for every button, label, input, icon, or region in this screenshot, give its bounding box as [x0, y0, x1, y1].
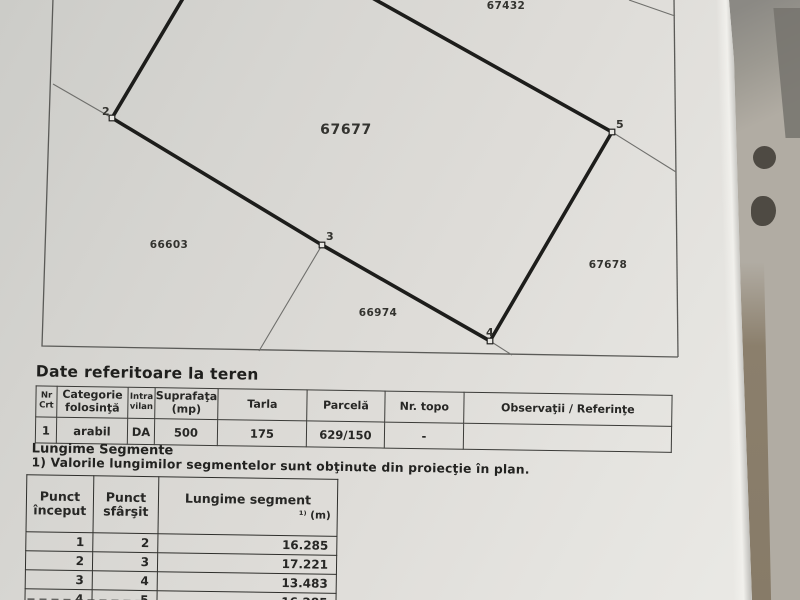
col-header-observatii: Observaţii / Referinţe	[464, 392, 672, 426]
parcel-number-67678: 67678	[589, 259, 628, 271]
boundary-line	[629, 0, 675, 16]
segment-start: 1	[26, 532, 93, 552]
photographed-document: 2 3 4 5 67432 67677 66603 67678 66974 Da…	[0, 0, 800, 600]
cell-tarla: 175	[217, 420, 306, 447]
cadastral-map: 2 3 4 5 67432 67677 66603 67678 66974	[0, 0, 700, 360]
col-header-categorie: Categorie folosinţă	[57, 386, 128, 418]
cell-parcela: 629/150	[306, 421, 384, 448]
col-header-intravilan: Intra vilan	[128, 387, 155, 418]
cell-observatii	[463, 423, 671, 452]
segment-end: 4	[92, 571, 157, 591]
boundary-line	[259, 245, 322, 351]
punch-hole-top	[753, 146, 776, 169]
land-data-title: Date referitoare la teren	[36, 362, 259, 383]
vertex-marker-4	[487, 338, 493, 344]
segments-table: Punct început Punct sfârşit Lungime segm…	[24, 474, 338, 600]
segment-length: 16.285	[157, 591, 336, 600]
segments-footnote: 1) Valorile lungimilor segmentelor sunt …	[31, 455, 529, 476]
cell-nr-topo: -	[384, 422, 463, 449]
parcel-number-67432: 67432	[487, 0, 526, 12]
col-header-nr-crt: Nr Crt	[36, 386, 57, 417]
col-header-punct-inceput: Punct început	[26, 475, 94, 533]
vertex-label-3: 3	[326, 230, 334, 243]
document-body: Date referitoare la teren Nr Crt Categor…	[0, 363, 780, 600]
col-header-parcela: Parcelă	[307, 390, 385, 422]
parcel-boundary-polygon	[112, 0, 612, 341]
segment-start: 3	[25, 570, 92, 590]
vertex-marker-5	[609, 129, 615, 135]
boundary-line	[612, 132, 676, 172]
parcel-number-67677: 67677	[320, 122, 372, 138]
parcel-number-66603: 66603	[150, 239, 189, 251]
vertex-label-4: 4	[486, 326, 494, 339]
lungime-segment-unit: ¹⁾ (m)	[159, 507, 337, 522]
segment-start: 2	[25, 551, 92, 571]
segment-end: 2	[93, 533, 158, 553]
segment-end: 3	[92, 552, 157, 572]
vertex-label-2: 2	[102, 105, 110, 118]
cell-suprafata: 500	[154, 419, 217, 446]
vertex-label-5: 5	[616, 118, 624, 131]
segment-length: 16.285	[158, 534, 337, 556]
vertex-marker-3	[319, 242, 325, 248]
cell-categorie: arabil	[56, 417, 127, 444]
parcel-number-66974: 66974	[359, 307, 398, 319]
col-header-suprafata: Suprafaţa (mp)	[155, 388, 218, 420]
map-frame-right	[674, 0, 678, 357]
neighbour-boundary-lines	[53, 0, 676, 355]
lungime-segment-label: Lungime segment	[185, 491, 311, 508]
cell-intravilan: DA	[127, 418, 154, 444]
cell-nr-crt: 1	[35, 417, 56, 443]
col-header-nr-topo: Nr. topo	[385, 391, 464, 423]
col-header-punct-sfarsit: Punct sfârşit	[93, 476, 159, 534]
col-header-lungime-segment: Lungime segment ¹⁾ (m)	[158, 477, 338, 537]
map-frame-left-bottom	[42, 0, 678, 357]
col-header-tarla: Tarla	[218, 389, 307, 421]
segments-header-row: Punct început Punct sfârşit Lungime segm…	[26, 475, 338, 537]
vertex-marker-2	[109, 115, 115, 121]
